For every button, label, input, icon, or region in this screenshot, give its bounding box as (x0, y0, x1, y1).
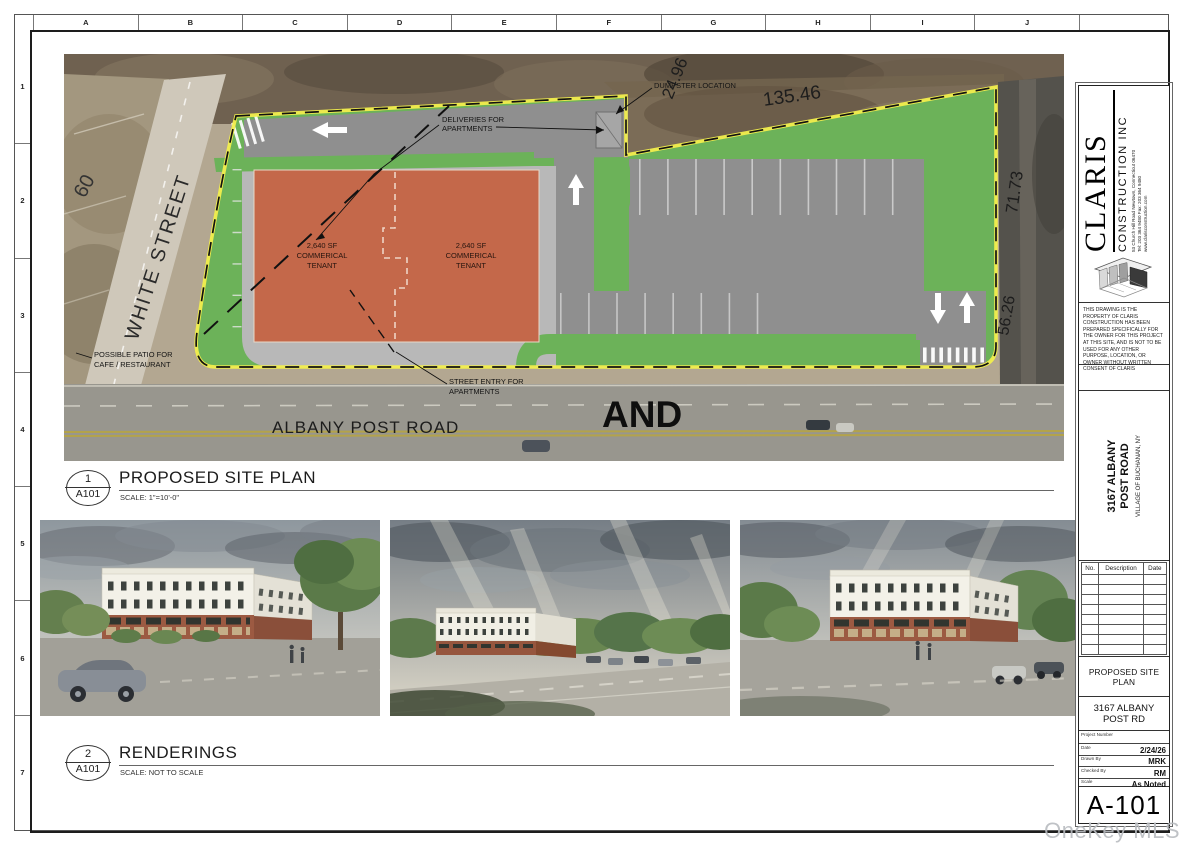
albany-post-road-surface (64, 384, 1064, 461)
revision-row (1082, 615, 1167, 625)
revision-row (1082, 605, 1167, 615)
grid-number: 3 (15, 259, 30, 373)
grid-letter: G (662, 15, 767, 30)
field-value: 2/24/26 (1140, 746, 1166, 755)
and-label: AND (602, 394, 682, 435)
revision-row (1082, 645, 1167, 655)
view-title-text: PROPOSED SITE PLAN (119, 468, 316, 488)
grid-number: 7 (15, 716, 30, 829)
view-scale-text: SCALE: NOT TO SCALE (120, 768, 203, 777)
field-label: Scale (1081, 779, 1093, 784)
company-subtitle: CONSTRUCTION INC (1117, 90, 1129, 252)
company-logo-cube (1093, 254, 1153, 300)
revision-table-section: No. Description Date (1079, 561, 1169, 657)
view-title-renderings: 2 A101 RENDERINGS SCALE: NOT TO SCALE (66, 743, 1066, 783)
grid-number: 4 (15, 373, 30, 487)
grid-letter: B (139, 15, 244, 30)
rendering-3 (740, 520, 1076, 716)
company-name: CLARIS (1080, 90, 1115, 252)
title-block-disclaimer: THIS DRAWING IS THE PROPERTY OF CLARIS C… (1079, 303, 1169, 365)
grid-letter-strip: A B C D E F G H I J (15, 15, 1166, 30)
albany-post-road-label: ALBANY POST ROAD (272, 418, 459, 437)
view-sheet-code: A101 (76, 762, 101, 777)
field-label: Drawn By (1081, 756, 1101, 761)
title-block-empty-box (1079, 365, 1169, 391)
grid-letter: D (348, 15, 453, 30)
grid-letter: J (975, 15, 1080, 30)
grid-letter: H (766, 15, 871, 30)
title-block-project-name: 3167 ALBANY POST ROAD VILLAGE OF BUCHANA… (1079, 391, 1169, 561)
project-short-name-box: 3167 ALBANY POST RD (1079, 697, 1169, 731)
rendering-2 (390, 520, 730, 716)
revision-row (1082, 625, 1167, 635)
view-number-bubble: 1 A101 (66, 470, 110, 506)
onekey-mls-watermark: OneKey MLS (1044, 818, 1180, 844)
field-checked-by: Checked By RM (1079, 766, 1169, 778)
project-name-line2: POST ROAD (1119, 393, 1132, 559)
sheet-number: A-101 (1087, 790, 1161, 821)
view-title-text: RENDERINGS (119, 743, 237, 763)
grid-number: 2 (15, 144, 30, 258)
commercial-building: 2,640 SF COMMERICAL TENANT 2,640 SF COMM… (254, 170, 539, 342)
site-plan-svg: 2,640 SF COMMERICAL TENANT 2,640 SF COMM… (64, 54, 1064, 461)
project-line2: POST RD (1103, 714, 1145, 725)
company-website: www.clarisconstruction.com (1143, 90, 1149, 252)
svg-text:TENANT: TENANT (307, 261, 337, 270)
rev-col-no: No. (1082, 563, 1099, 575)
field-drawn-by: Drawn By MRK (1079, 755, 1169, 767)
revision-row (1082, 575, 1167, 585)
grid-letter: F (557, 15, 662, 30)
site-plan-drawing: 2,640 SF COMMERICAL TENANT 2,640 SF COMM… (64, 54, 1064, 461)
grid-corner (15, 15, 34, 30)
car-on-road (522, 440, 550, 452)
street-entry-label: STREET ENTRY FOR (449, 377, 524, 386)
project-line1: 3167 ALBANY (1094, 703, 1155, 714)
view-number: 2 (85, 746, 91, 762)
grid-letter: A (34, 15, 139, 30)
view-number-bubble: 2 A101 (66, 745, 110, 781)
neighbor-parking-lot (998, 76, 1064, 386)
bubble-divider (65, 762, 111, 763)
title-block: CLARIS CONSTRUCTION INC 53 Church Hill R… (1078, 85, 1170, 824)
svg-text:APARTMENTS: APARTMENTS (442, 124, 493, 133)
car-on-road (806, 420, 830, 430)
project-name-line1: 3167 ALBANY (1106, 393, 1119, 559)
view-sheet-code: A101 (76, 487, 101, 502)
field-value: RM (1154, 769, 1166, 778)
view-scale-text: SCALE: 1"=10'-0" (120, 493, 179, 502)
field-value: MRK (1148, 757, 1166, 766)
patio-label: POSSIBLE PATIO FOR (94, 350, 173, 359)
revision-table: No. Description Date (1081, 562, 1167, 655)
view-title-rule (119, 765, 1054, 766)
car-on-road (836, 423, 854, 432)
field-label: Checked By (1081, 768, 1106, 773)
field-project-number: Project Number (1079, 731, 1169, 743)
grid-letter: I (871, 15, 976, 30)
building (102, 568, 312, 640)
svg-text:TENANT: TENANT (456, 261, 486, 270)
svg-text:2,640 SF: 2,640 SF (307, 241, 338, 250)
view-number: 1 (85, 471, 91, 487)
svg-text:APARTMENTS: APARTMENTS (449, 387, 500, 396)
revision-row (1082, 595, 1167, 605)
svg-text:COMMERICAL: COMMERICAL (297, 251, 348, 260)
rev-col-date: Date (1143, 563, 1166, 575)
grid-letter: C (243, 15, 348, 30)
grid-filler (1080, 15, 1166, 30)
grid-number-strip: 1 2 3 4 5 6 7 (15, 30, 30, 829)
project-fields: Project Number Date 2/24/26 Drawn By MRK… (1079, 731, 1169, 787)
grid-number: 6 (15, 601, 30, 715)
title-block-logo-section: CLARIS CONSTRUCTION INC 53 Church Hill R… (1079, 86, 1169, 303)
rendering-1 (40, 520, 380, 716)
view-title-rule (119, 490, 1054, 491)
rev-col-description: Description (1099, 563, 1143, 575)
grid-letter: E (452, 15, 557, 30)
grid-number: 1 (15, 30, 30, 144)
sheet-title-text: PROPOSED SITE PLAN (1079, 667, 1169, 687)
deliveries-label: DELIVERIES FOR (442, 115, 505, 124)
revision-row (1082, 635, 1167, 645)
svg-text:COMMERICAL: COMMERICAL (446, 251, 497, 260)
svg-text:CAFE / RESTAURANT: CAFE / RESTAURANT (94, 360, 171, 369)
bubble-divider (65, 487, 111, 488)
field-label: Date (1081, 745, 1091, 750)
revision-row (1082, 585, 1167, 595)
svg-text:2,640 SF: 2,640 SF (456, 241, 487, 250)
building (830, 570, 1018, 642)
view-title-site-plan: 1 A101 PROPOSED SITE PLAN SCALE: 1"=10'-… (66, 468, 1066, 508)
project-location: VILLAGE OF BUCHANAN, NY (1136, 393, 1142, 559)
field-label: Project Number (1081, 732, 1113, 737)
grid-number: 5 (15, 487, 30, 601)
field-date: Date 2/24/26 (1079, 743, 1169, 755)
sheet-title-box: PROPOSED SITE PLAN (1079, 657, 1169, 697)
